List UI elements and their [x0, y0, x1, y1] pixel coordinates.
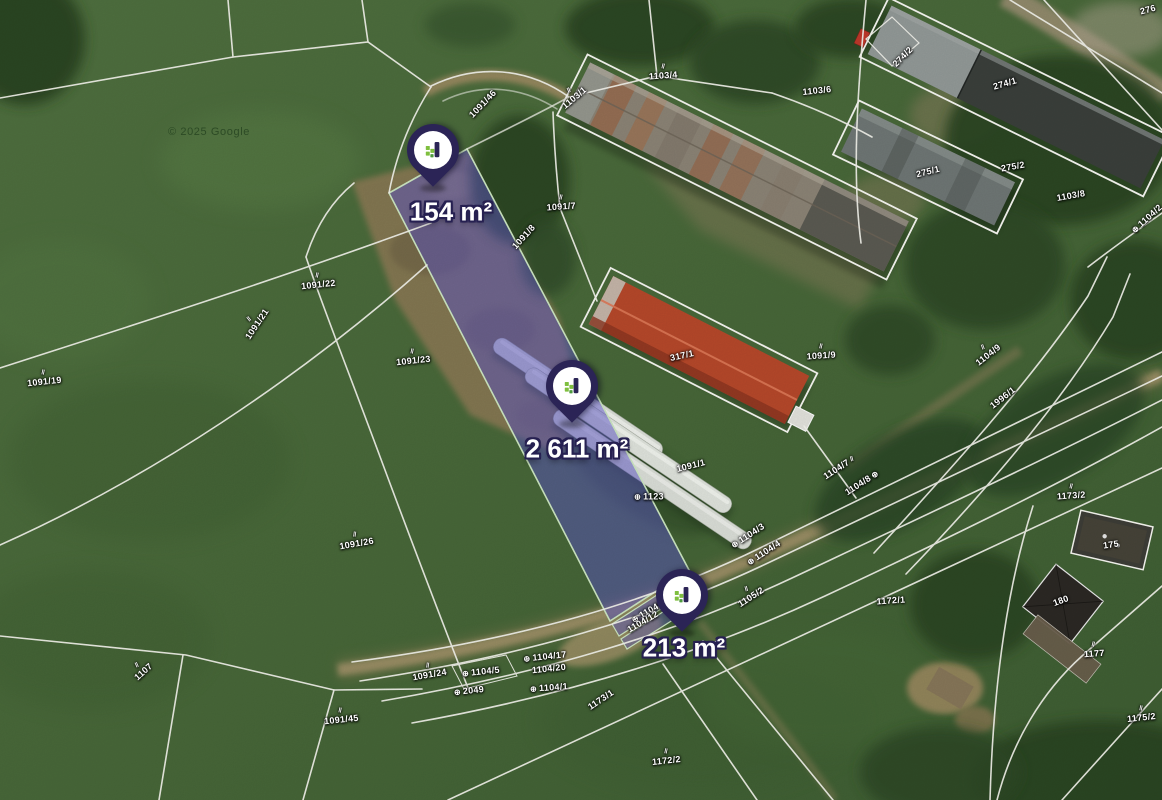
pin-area-label: 2 611 m² [526, 434, 629, 465]
pin-logo [663, 576, 701, 614]
map-canvas[interactable]: ‖1103/4‖1103/11103/6274/2274/1275/1275/2… [0, 0, 1162, 800]
bar-chart-logo-icon [560, 374, 584, 398]
pin-logo [553, 367, 591, 405]
pin-area-label: 154 m² [410, 197, 492, 228]
bar-chart-logo-icon [421, 138, 445, 162]
pin-logo [414, 131, 452, 169]
pin-area-label: 213 m² [643, 633, 725, 664]
map-attribution: © 2025 Google [168, 126, 250, 138]
bar-chart-logo-icon [670, 583, 694, 607]
